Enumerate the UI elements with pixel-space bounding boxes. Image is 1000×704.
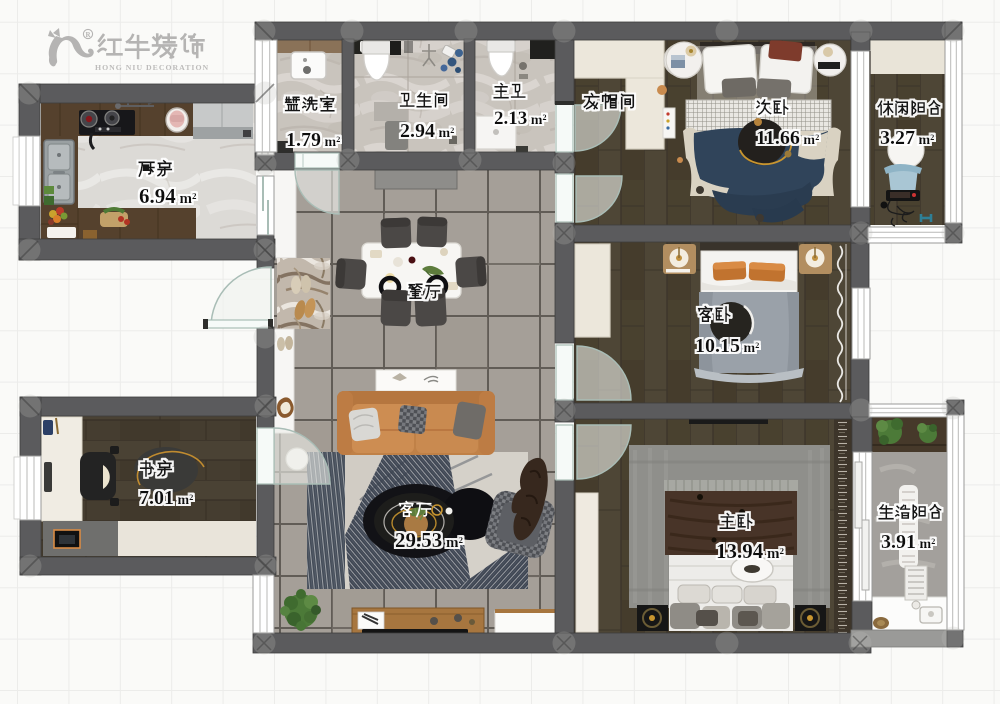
svg-text:HONG NIU DECORATION: HONG NIU DECORATION xyxy=(95,63,209,72)
